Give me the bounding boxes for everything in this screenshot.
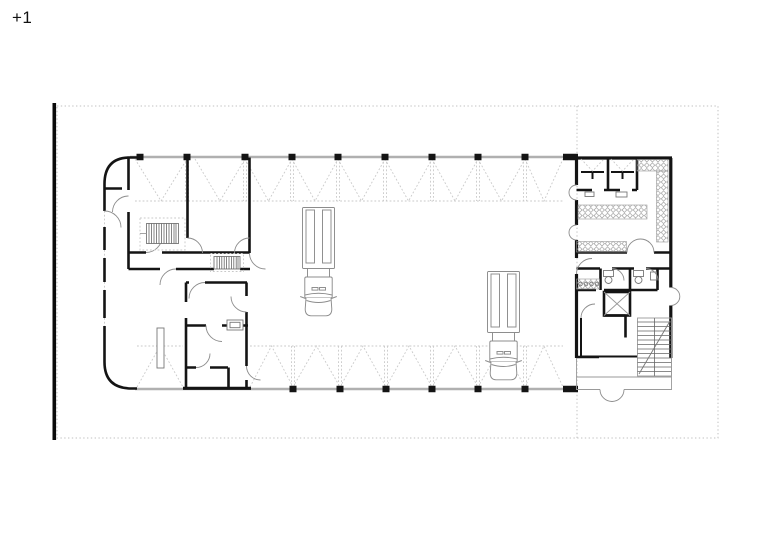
exit-double-door	[600, 390, 624, 402]
left-wing-walls	[105, 158, 251, 389]
drawing-sheet: +1	[0, 0, 780, 551]
right-block-walls	[566, 158, 672, 358]
vestibule	[577, 358, 672, 402]
truck-1	[300, 208, 337, 316]
elevator-shaft	[604, 292, 630, 316]
stair-secondary	[211, 254, 244, 272]
truck-2	[485, 272, 522, 380]
left-wing-room-block	[157, 283, 251, 390]
floor-plan	[0, 0, 780, 551]
stair-main	[140, 218, 185, 250]
site-boundary-line	[53, 103, 57, 440]
cabinet	[157, 328, 164, 368]
stair-right	[638, 318, 672, 376]
